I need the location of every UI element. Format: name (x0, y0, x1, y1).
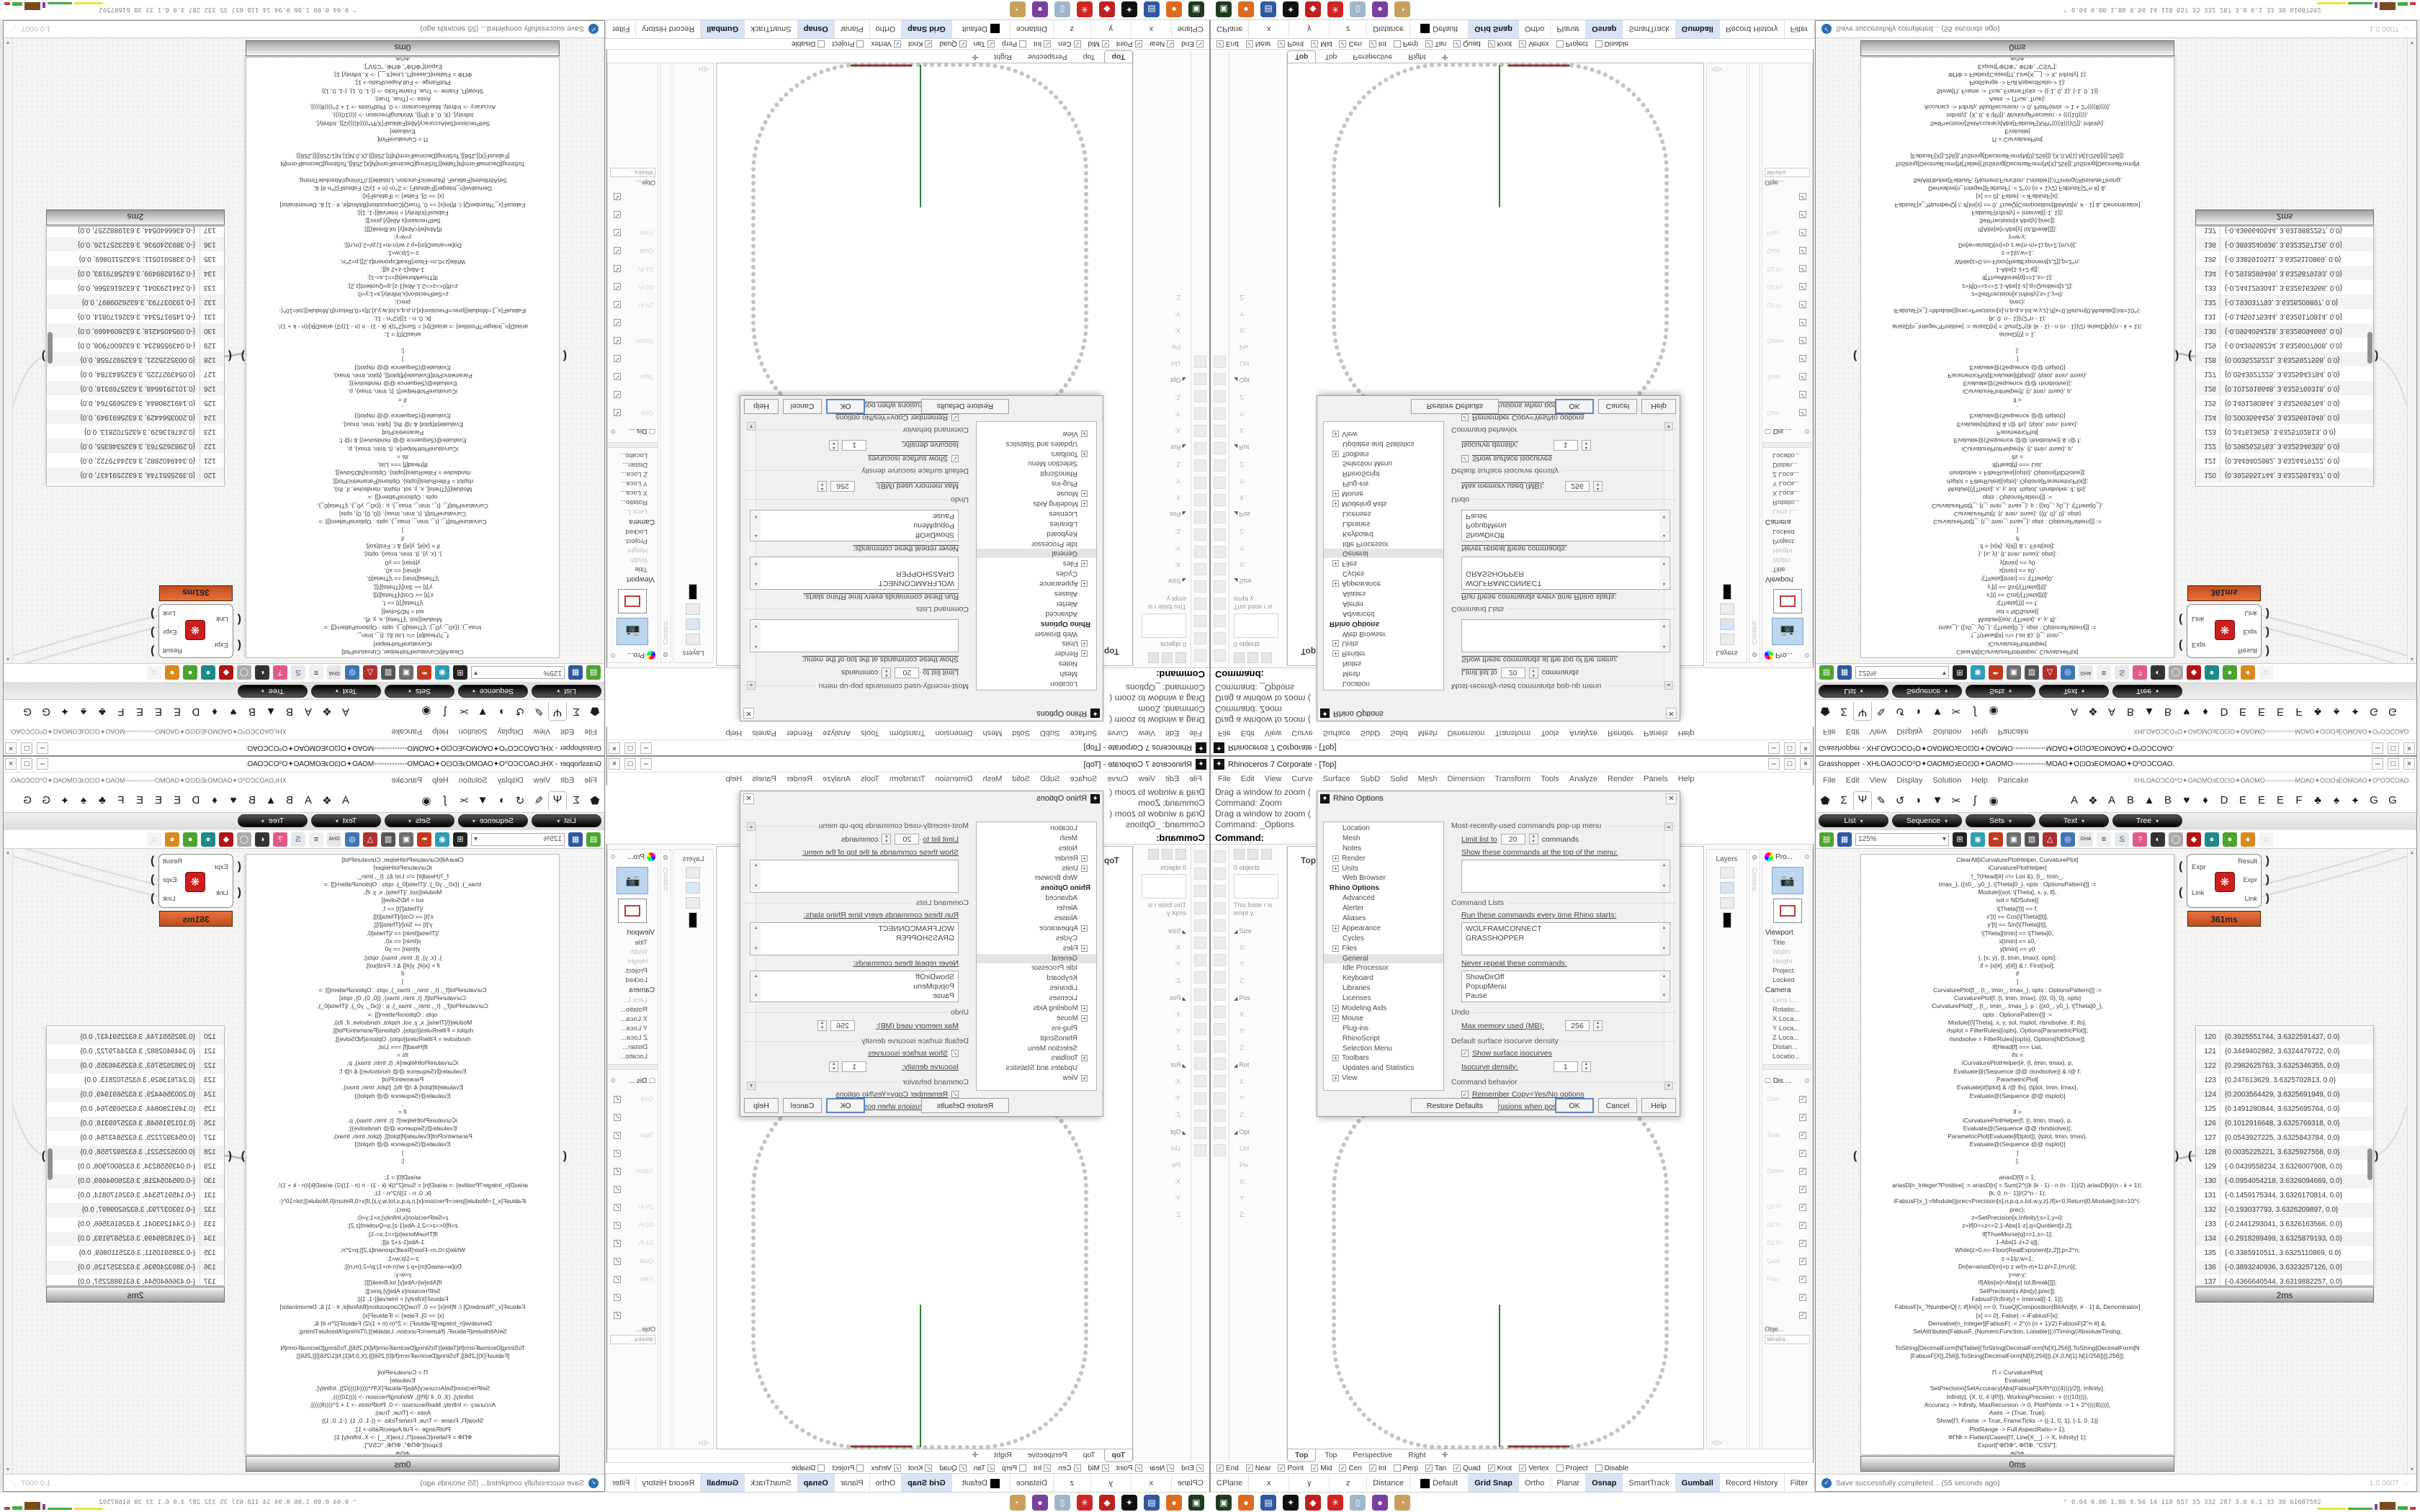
close-button[interactable]: × (5, 758, 17, 770)
toolbar-icon[interactable] (1194, 919, 1206, 932)
taskbar-palette-icon[interactable]: ◔ (1394, 1495, 1410, 1511)
tree-item-alerter[interactable]: Alerter (1324, 904, 1443, 914)
code-panel-input-grip[interactable]: ( (1853, 349, 1857, 362)
toolbar-icon[interactable] (1194, 615, 1206, 627)
help-button[interactable]: Help (1641, 1098, 1676, 1113)
taskbar-firefox-icon[interactable]: ● (1166, 2, 1182, 18)
tab-b2-icon[interactable]: B (243, 794, 261, 806)
menu-item-file[interactable]: File (1218, 729, 1231, 737)
menu-item-file[interactable]: File (1218, 775, 1231, 783)
menu-item-surface[interactable]: Surface (1323, 729, 1350, 737)
tree-item-cycles[interactable]: Cycles (977, 568, 1096, 578)
tree-item-render[interactable]: +Render (1324, 648, 1443, 658)
list-item[interactable]: 122{0.2982625763, 3.6325346355, 0.0} (47, 1059, 224, 1074)
expr-output-expr[interactable]: Expr (163, 876, 177, 884)
isocurve-density-input[interactable]: 1 (1554, 440, 1578, 451)
osnap-checkbox[interactable] (1556, 1464, 1564, 1472)
status-smarttrack[interactable]: SmartTrack (744, 19, 797, 38)
expand-plus-icon[interactable]: + (1332, 925, 1339, 932)
cluster-icon[interactable]: ? (2133, 666, 2147, 680)
tree-item-cycles[interactable]: Cycles (977, 934, 1096, 944)
list-item[interactable]: 134{-0.2918289499, 3.6325879193, 0.0} (47, 1232, 224, 1246)
osnap-cen[interactable]: ✓Cen (1058, 40, 1080, 48)
material-list-box[interactable] (1234, 613, 1278, 638)
menu-item-edit[interactable]: Edit (560, 776, 574, 785)
list-item[interactable]: 133{-0.2441293041, 3.6326163566, 0.0} (2196, 1218, 2373, 1232)
dialog-titlebar[interactable]: ✦ Rhino Options (740, 706, 1103, 721)
ok-button[interactable]: OK (826, 1098, 865, 1113)
list-panel-input-grip[interactable]: ( (228, 349, 232, 362)
status-default[interactable]: Default (951, 1474, 1010, 1493)
tree-item-files[interactable]: +Files (1324, 944, 1443, 954)
list-item[interactable]: 132{-0.193037793, 3.6326209897, 0.0} (2196, 294, 2373, 309)
tab-fly-icon[interactable]: ♣ (93, 706, 112, 718)
wireframe-icon[interactable]: ◯ (2169, 832, 2183, 847)
viewport-properties-button[interactable] (1773, 589, 1802, 613)
tab-paw-icon[interactable]: ♠ (2327, 706, 2346, 718)
toolbar-icon[interactable] (1214, 477, 1226, 489)
rhino-titlebar[interactable]: ✦ Rhinoceros 7 Corporate - [Top] (1211, 739, 1813, 755)
status-distance[interactable]: Distance (1367, 19, 1410, 38)
list-item[interactable]: 137{-0.4366640544, 3.6319882257, 0.0} (47, 1275, 224, 1286)
transform-icon[interactable]: ʃ (436, 706, 454, 718)
tab-group-list[interactable]: List (532, 685, 601, 698)
dialog-close-icon[interactable]: ✕ (1666, 793, 1677, 804)
tree-item-libraries[interactable]: Libraries (1324, 518, 1443, 528)
menu-item-help[interactable]: Help (432, 776, 449, 785)
ball-green-icon[interactable]: ● (2223, 832, 2237, 847)
toolbar-icon[interactable] (1214, 937, 1226, 949)
osnap-project[interactable]: Project (832, 40, 864, 48)
tab-g2-icon[interactable]: G (2383, 706, 2402, 718)
viewport-prop-row[interactable]: Project. (1762, 536, 1812, 546)
help-button[interactable]: Help (1641, 399, 1676, 414)
tree-item-rhino-options[interactable]: Rhino Options (977, 618, 1096, 629)
speaker-icon[interactable]: ▥ (2025, 666, 2039, 680)
tab-f-icon[interactable]: F (112, 794, 130, 806)
list-item[interactable]: 120{0.3925551744, 3.6322591437, 0.0} (2196, 1030, 2373, 1045)
toolbar-icon[interactable] (1214, 563, 1226, 575)
viewport-prop-row[interactable]: Title (1762, 564, 1812, 574)
osnap-int[interactable]: ✓Int (1034, 1464, 1051, 1472)
status-gumball[interactable]: Gumball (700, 1474, 744, 1493)
transform-icon[interactable]: ʃ (436, 794, 454, 806)
script-doc-icon[interactable]: ≡ (309, 832, 323, 847)
tab-b1-icon[interactable]: B (2121, 794, 2140, 806)
surface-icon[interactable]: ◗ (1909, 706, 1928, 718)
osnap-knot[interactable]: ✓Knot (1488, 1464, 1512, 1472)
never-command-item[interactable]: PopupMenu (762, 982, 954, 991)
menu-item-edit[interactable]: Edit (1846, 727, 1860, 736)
curve-icon[interactable]: ↺ (1891, 706, 1909, 719)
status-filter[interactable]: Filter (1785, 1474, 1814, 1493)
properties-tab-label[interactable]: Pro... (1775, 652, 1793, 660)
tree-item-mouse[interactable]: +Mouse (977, 488, 1096, 498)
camera-prop-row[interactable]: Z Loca... (608, 469, 658, 479)
osnap-checkbox[interactable]: ✓ (1102, 1464, 1109, 1472)
viewport-prop-row[interactable]: Height (1762, 546, 1812, 555)
list-panel-input-grip[interactable]: ( (228, 1150, 232, 1163)
osnap-project[interactable]: Project (832, 1464, 864, 1472)
toolbar-icon[interactable] (1194, 546, 1206, 558)
display-checkbox[interactable]: ✓ (1799, 1114, 1806, 1121)
resize-grip[interactable]: ⋰ (2403, 1479, 2411, 1488)
toolbar-icon[interactable] (1214, 632, 1226, 644)
menu-item-edit[interactable]: Edit (1165, 775, 1179, 783)
expand-plus-icon[interactable]: + (1081, 451, 1088, 457)
display-checkbox[interactable]: ✓ (1799, 248, 1806, 255)
dialog-titlebar[interactable]: ✦ Rhino Options (1317, 791, 1680, 806)
viewport-tab-top-0[interactable]: Top (1287, 50, 1316, 63)
osnap-checkbox[interactable]: ✓ (1519, 40, 1526, 48)
list-item[interactable]: 137{-0.4366640544, 3.6319882257, 0.0} (2196, 226, 2373, 237)
status-grid-snap[interactable]: Grid Snap (1469, 1474, 1519, 1493)
camera-prop-row[interactable]: Distan... (1762, 460, 1812, 469)
taskbar-obs-icon[interactable]: ▣ (1188, 1495, 1204, 1511)
status-filter[interactable]: Filter (606, 19, 635, 38)
viewport-tab-top-0[interactable]: Top (1287, 1449, 1316, 1462)
osnap-knot[interactable]: ✓Knot (908, 40, 933, 48)
osnap-checkbox[interactable]: ✓ (1196, 1464, 1204, 1472)
camera-prop-row[interactable]: Distan... (608, 460, 658, 469)
tree-item-view[interactable]: +View (1324, 428, 1443, 438)
taskbar-notes-icon[interactable]: ▯ (1350, 1495, 1366, 1511)
menu-item-file[interactable]: File (1189, 775, 1202, 783)
ball-green-icon[interactable]: ● (183, 832, 197, 847)
toolbar-icon[interactable] (1194, 598, 1206, 610)
viewport-tab-perspective-2[interactable]: Perspective (1021, 1449, 1075, 1461)
list-item[interactable]: 124{0.2003564429, 3.6325691949, 0.0} (2196, 410, 2373, 424)
viewport-prop-row[interactable]: Title (608, 564, 658, 574)
memory-spinner[interactable]: ▲▼ (1593, 481, 1603, 492)
status-ortho[interactable]: Ortho (869, 19, 902, 38)
viewport-tab-right-3[interactable]: Right (987, 51, 1019, 63)
expand-plus-icon[interactable]: + (1081, 500, 1088, 507)
maximize-button[interactable]: □ (1784, 758, 1796, 770)
expand-plus-icon[interactable]: + (1081, 855, 1088, 862)
osnap-checkbox[interactable]: ✓ (1074, 40, 1081, 48)
status-filter[interactable]: Filter (606, 1474, 635, 1493)
list-item[interactable]: 130{-0.0954054218, 3.6326094669, 0.0} (2196, 323, 2373, 338)
tree-item-libraries[interactable]: Libraries (977, 518, 1096, 528)
tree-item-mouse[interactable]: +Mouse (1324, 488, 1443, 498)
toolbar-icon[interactable] (1214, 850, 1226, 863)
tree-item-selection-menu[interactable]: Selection Menu (1324, 1044, 1443, 1054)
gear-icon[interactable]: ⚙ (610, 652, 616, 660)
menu-item-transform[interactable]: Transform (889, 729, 926, 737)
curve-icon[interactable]: ↺ (1891, 794, 1909, 807)
menu-item-view[interactable]: View (1139, 729, 1156, 737)
osnap-checkbox[interactable]: ✓ (1369, 1464, 1376, 1472)
list-item[interactable]: 136{-0.3893240936, 3.6323257126, 0.0} (2196, 237, 2373, 251)
cluster-icon[interactable]: ? (273, 832, 287, 847)
display-checkbox[interactable]: ✓ (614, 212, 621, 219)
mesh-spheres-icon[interactable]: ◐ (255, 832, 269, 847)
display-checkbox[interactable]: ✓ (1799, 266, 1806, 273)
run-command-item[interactable]: WOLFRAMCONNECT (762, 924, 954, 934)
tree-item-location[interactable]: Location (977, 824, 1096, 834)
gear-icon[interactable]: ⚙ (660, 854, 671, 862)
gha-icon[interactable]: GHA (2079, 666, 2093, 680)
tab-g1-icon[interactable]: G (2365, 794, 2383, 806)
osnap-project[interactable]: Project (1556, 1464, 1588, 1472)
viewport-tab-right-3[interactable]: Right (1401, 1449, 1433, 1461)
search-s-icon[interactable]: S (2115, 666, 2129, 680)
toolbar-icon[interactable] (1214, 1023, 1226, 1035)
osnap-vertex[interactable]: ✓Vertex (1519, 1464, 1549, 1472)
display-checkbox[interactable]: ✓ (1799, 1186, 1806, 1193)
menu-item-analyze[interactable]: Analyze (1569, 729, 1597, 737)
limit-spinner[interactable]: ▲▼ (1529, 667, 1538, 678)
tab-bird-icon[interactable]: ♦ (2196, 706, 2215, 718)
toolbar-icon[interactable] (1214, 954, 1226, 966)
gh-titlebar[interactable]: Grasshopper - XHĿΟΑΟϽCΟ⁰Ο✦ΟΑΟΜΟ϶ΕΟ⊡Ο✦ΟΑΟ… (1816, 739, 2416, 755)
menu-item-view[interactable]: View (1265, 775, 1282, 783)
gear-icon[interactable]: ⚙ (1749, 650, 1760, 658)
status-grid-snap[interactable]: Grid Snap (901, 1474, 951, 1493)
osnap-tan[interactable]: ✓Tan (974, 40, 995, 48)
osnap-checkbox[interactable]: ✓ (1488, 1464, 1495, 1472)
list-item[interactable]: 132{-0.193037793, 3.6326209897, 0.0} (47, 294, 224, 309)
close-button[interactable]: × (5, 742, 17, 754)
never-command-item[interactable]: PopupMenu (1466, 982, 1658, 991)
toolbar-icon[interactable] (1194, 494, 1206, 506)
code-panel-output-grip[interactable]: ) (241, 1150, 245, 1163)
viewport-tab-perspective-2[interactable]: Perspective (1345, 1449, 1399, 1461)
display-checkbox[interactable]: ✓ (614, 1150, 621, 1157)
osnap-near[interactable]: ✓Near (1246, 1464, 1271, 1472)
params-primitive-icon[interactable]: Ψ (548, 703, 567, 721)
list-item[interactable]: 121{0.3449402882, 3.6324479722, 0.0} (2196, 1045, 2373, 1059)
display-checkbox[interactable]: ✓ (614, 284, 621, 291)
tab-group-sequence[interactable]: Sequence (1892, 685, 1962, 698)
ok-button[interactable]: OK (826, 399, 865, 414)
osnap-cen[interactable]: ✓Cen (1339, 1464, 1361, 1472)
speaker-icon[interactable]: ▥ (2025, 832, 2039, 847)
toolbar-icon[interactable] (1194, 459, 1206, 472)
tab-f-icon[interactable]: F (2290, 794, 2308, 806)
tree-item-updates-and-statistics[interactable]: Updates and Statistics (1324, 1063, 1443, 1074)
display-checkbox[interactable]: ✓ (1799, 194, 1806, 201)
camera-prop-row[interactable]: Locatio... (608, 1052, 658, 1061)
gh-titlebar[interactable]: Grasshopper - XHĿΟΑΟϽCΟ⁰Ο✦ΟΑΟΜΟ϶ΕΟ⊡Ο✦ΟΑΟ… (1816, 757, 2416, 773)
rhino-titlebar[interactable]: ✦ Rhinoceros 7 Corporate - [Top] (1211, 757, 1813, 773)
density-spinner[interactable]: ▲▼ (829, 1061, 838, 1072)
list-item[interactable]: 128{0.0035225221, 3.6325927558, 0.0} (47, 1146, 224, 1160)
surface-icon[interactable]: ◗ (492, 794, 511, 806)
menu-item-render[interactable]: Render (1608, 729, 1633, 737)
speaker-icon[interactable]: ▥ (381, 666, 395, 680)
tab-g1-icon[interactable]: G (2365, 706, 2383, 718)
taskbar-notes-icon[interactable]: ▯ (1350, 2, 1366, 18)
material-list-box[interactable] (1142, 613, 1186, 638)
tab-skull-icon[interactable]: ❖ (2084, 706, 2102, 719)
script-doc-icon[interactable]: ≡ (2097, 832, 2111, 847)
maximize-button[interactable]: □ (21, 742, 32, 754)
expr-output-link[interactable]: Link (163, 609, 175, 617)
tree-item-keyboard[interactable]: Keyboard (977, 973, 1096, 984)
status-gumball[interactable]: Gumball (1676, 19, 1720, 38)
tree-item-updates-and-statistics[interactable]: Updates and Statistics (1324, 438, 1443, 449)
osnap-checkbox[interactable]: ✓ (1488, 40, 1495, 48)
menu-item-edit[interactable]: Edit (1846, 776, 1860, 785)
menu-item-subd[interactable]: SubD (1361, 775, 1381, 783)
tree-item-toolbars[interactable]: +Toolbars (1324, 449, 1443, 459)
tree-item-advanced[interactable]: Advanced (977, 608, 1096, 618)
expand-plus-icon[interactable]: + (1081, 650, 1088, 657)
expand-plus-icon[interactable]: + (1081, 640, 1088, 647)
max-memory-input[interactable]: 256 (1565, 481, 1590, 492)
tab-a1-icon[interactable]: A (336, 706, 355, 718)
toolbar-icon[interactable] (1194, 442, 1206, 454)
camera-properties-button[interactable]: 📷 (1772, 618, 1803, 645)
camera-prop-row[interactable]: Rotatio... (608, 498, 658, 507)
taskbar-notes-icon[interactable]: ▯ (1054, 2, 1070, 18)
list-item[interactable]: 121{0.3449402882, 3.6324479722, 0.0} (2196, 453, 2373, 467)
taskbar-save-icon[interactable]: ▤ (1260, 2, 1276, 18)
tree-item-rhinoscript[interactable]: RhinoScript (1324, 468, 1443, 478)
toolbar-icon[interactable] (1194, 356, 1206, 368)
maximize-button[interactable]: □ (2388, 742, 2399, 754)
osnap-vertex[interactable]: ✓Vertex (1519, 40, 1549, 48)
osnap-perp[interactable]: Perp (1002, 1464, 1026, 1472)
toolbar-icon[interactable] (1194, 1058, 1206, 1070)
list-item[interactable]: 133{-0.2441293041, 3.6326163566, 0.0} (47, 280, 224, 294)
osnap-perp[interactable]: Perp (1394, 1464, 1418, 1472)
intersect-icon[interactable]: ✂ (454, 706, 473, 719)
params-primitive-icon[interactable]: Ψ (1853, 791, 1872, 810)
tree-item-render[interactable]: +Render (977, 854, 1096, 864)
layers-hscroll[interactable]: ◁ ▷ (698, 66, 709, 73)
display-checkbox[interactable]: ✓ (1799, 1222, 1806, 1229)
memory-spinner[interactable]: ▲▼ (817, 481, 827, 492)
viewport-tab-top-1[interactable]: Top (1076, 51, 1103, 63)
menu-item-display[interactable]: Display (1896, 727, 1922, 736)
horizontal-scrollbar[interactable] (1762, 442, 1812, 448)
tab-skull-icon[interactable]: ❖ (318, 706, 336, 719)
tripod-icon[interactable]: △ (2043, 832, 2057, 847)
camera-properties-button[interactable]: 📷 (1772, 867, 1803, 894)
menu-item-analyze[interactable]: Analyze (823, 729, 851, 737)
gh-canvas[interactable]: ClearAll[iCurvaturePlotHelper, Curvature… (1816, 849, 2416, 1474)
menu-item-edit[interactable]: Edit (1241, 775, 1255, 783)
input-grip[interactable]: ( (238, 639, 241, 652)
expr-input-expr[interactable]: Expr (214, 863, 228, 871)
list-item[interactable]: 134{-0.2918289499, 3.6325879193, 0.0} (47, 266, 224, 280)
tree-item-advanced[interactable]: Advanced (1324, 894, 1443, 904)
search-s-icon[interactable]: S (291, 666, 305, 680)
code-panel-output-grip[interactable]: ) (2175, 1150, 2179, 1163)
tab-e1-icon[interactable]: E (2233, 794, 2252, 806)
taskbar-rhino-icon[interactable]: ✦ (1121, 1495, 1137, 1511)
menu-item-view[interactable]: View (1139, 775, 1156, 783)
menu-item-solution[interactable]: Solution (459, 776, 488, 785)
ball-teal-icon[interactable]: ● (201, 666, 215, 680)
osnap-knot[interactable]: ✓Knot (1488, 40, 1512, 48)
viewport-prop-row[interactable]: Width (608, 948, 658, 957)
tripod-icon[interactable]: △ (363, 832, 377, 847)
taskbar-rhino-icon[interactable]: ✦ (1283, 2, 1299, 18)
menu-item-surface[interactable]: Surface (1070, 729, 1097, 737)
camera-prop-row[interactable]: Distan... (1762, 1043, 1812, 1052)
menu-item-curve[interactable]: Curve (1107, 775, 1128, 783)
horizontal-scrollbar[interactable] (608, 1064, 658, 1070)
taskbar-obs-icon[interactable]: ▣ (1216, 1495, 1232, 1511)
tab-e1-icon[interactable]: E (168, 794, 187, 806)
list-scrollbar-thumb[interactable] (48, 332, 53, 364)
camera-prop-row[interactable]: X Loca... (608, 1014, 658, 1024)
code-panel[interactable]: ClearAll[iCurvaturePlotHelper, Curvature… (1860, 57, 2174, 658)
never-command-item[interactable]: ShowDirOff (1466, 530, 1658, 539)
tree-item-location[interactable]: Location (1324, 824, 1443, 834)
tree-item-aliases[interactable]: Aliases (1324, 914, 1443, 924)
osnap-checkbox[interactable]: ✓ (1425, 1464, 1433, 1472)
osnap-checkbox[interactable]: ✓ (1167, 40, 1174, 48)
taskbar-keepass-icon[interactable]: ◆ (1305, 2, 1321, 18)
taskbar-keepass-icon[interactable]: ◆ (1099, 1495, 1115, 1511)
mesh-spheres-icon[interactable]: ◐ (2151, 832, 2165, 847)
run-commands-listbox[interactable]: ▲▼WOLFRAMCONNECTGRASSHOPPER (1461, 557, 1670, 590)
osnap-quad[interactable]: ✓Quad (939, 40, 966, 48)
tab-skull-icon[interactable]: ❖ (2084, 794, 2102, 807)
params-geometry-icon[interactable]: ⬟ (1816, 794, 1834, 807)
tree-item-render[interactable]: +Render (977, 648, 1096, 658)
tab-group-sets[interactable]: Sets (385, 814, 454, 827)
core-icon[interactable]: ◎ (345, 666, 359, 680)
ball-orange-icon[interactable]: ● (165, 832, 179, 847)
tab-mountain-icon[interactable]: ▲ (2140, 794, 2159, 806)
intersect-icon[interactable]: ✂ (454, 794, 473, 807)
restore-defaults-button[interactable]: Restore Defaults (921, 399, 1009, 414)
new-document-icon[interactable]: ▤ (586, 666, 601, 680)
expr-component[interactable]: Expr Link Result Expr Link ❋ ( ( ) ) ) (158, 854, 233, 908)
menu-item-view[interactable]: View (1265, 729, 1282, 737)
list-item[interactable]: 125{0.1491280844, 3.6325695764, 0.0} (47, 1102, 224, 1117)
never-command-item[interactable]: PopupMenu (762, 521, 954, 530)
close-button[interactable]: × (609, 742, 620, 754)
tree-item-view[interactable]: +View (1324, 1074, 1443, 1084)
minimize-button[interactable]: – (640, 742, 652, 754)
menu-item-help[interactable]: Help (1678, 729, 1695, 737)
camera-prop-row[interactable]: Locatio... (1762, 451, 1812, 460)
viewport-prop-row[interactable]: Locked (608, 527, 658, 536)
status-distance[interactable]: Distance (1010, 1474, 1053, 1493)
menu-item-help[interactable]: Help (1971, 776, 1988, 785)
menu-item-solid[interactable]: Solid (1012, 775, 1029, 783)
list-item[interactable]: 133{-0.2441293041, 3.6326163566, 0.0} (47, 1218, 224, 1232)
osnap-checkbox[interactable]: ✓ (1246, 40, 1253, 48)
status-record-history[interactable]: Record History (635, 1474, 700, 1493)
toolbar-icon[interactable] (1214, 598, 1226, 610)
viewport-tab-right-3[interactable]: Right (987, 1449, 1019, 1461)
ball-green-icon[interactable]: ● (183, 666, 197, 680)
display-checkbox[interactable]: ✓ (614, 1312, 621, 1319)
menu-item-tools[interactable]: Tools (861, 775, 879, 783)
gha-icon[interactable]: GHA (2079, 832, 2093, 847)
run-command-item[interactable]: GRASSHOPPER (762, 934, 954, 943)
tree-item-toolbars[interactable]: +Toolbars (977, 1053, 1096, 1063)
toolbar-icon[interactable] (1214, 919, 1226, 932)
taskbar-rhino-icon[interactable]: ✦ (1283, 1495, 1299, 1511)
remember-copy-checkbox[interactable]: ✓ (951, 1091, 959, 1098)
curve-icon[interactable]: ↺ (511, 794, 529, 807)
never-command-item[interactable]: Pause (1466, 511, 1658, 521)
bake-icon[interactable]: ▣ (399, 832, 413, 847)
core-icon[interactable]: ◎ (345, 832, 359, 847)
list-item[interactable]: 128{0.0035225221, 3.6325927558, 0.0} (2196, 1146, 2373, 1160)
close-button[interactable]: × (1800, 758, 1811, 770)
output-grip[interactable]: ) (151, 892, 154, 905)
